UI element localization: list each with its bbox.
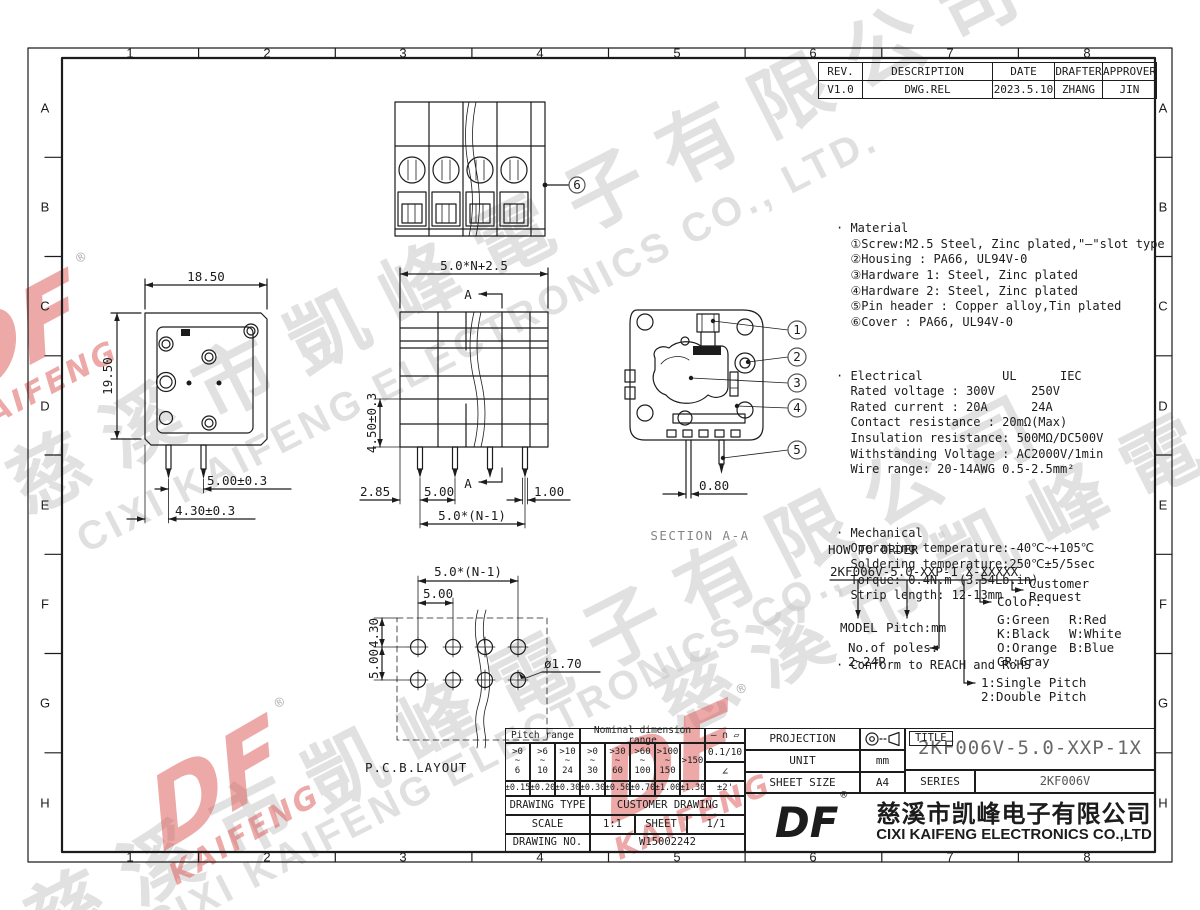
drafter-value: ZHANG — [1055, 81, 1103, 99]
color-option-white: W:White — [1069, 626, 1122, 641]
pitch-tol-2: ±0.20 — [530, 781, 555, 796]
dim-body-width-formula: 5.0*N+2.5 — [440, 258, 508, 273]
title-cell: TITLE 2KF006V-5.0-XXP-1X — [905, 728, 1155, 770]
company-strip: DF® 慈溪市凯峰电子有限公司 CIXI KAIFENG ELECTRONICS… — [745, 793, 1155, 852]
grid-col-label: 2 — [263, 46, 270, 61]
grid-row-label: A — [41, 101, 50, 116]
nominal-range-4: >100 ~ 150 — [655, 743, 680, 781]
color-option-orange: O:Orange — [997, 640, 1057, 655]
rev-header: REV. — [819, 63, 863, 81]
electrical-notes: · Electrical UL IEC Rated voltage : 300V… — [836, 369, 1158, 478]
angle-symbol: ∠ — [705, 762, 745, 781]
dim-body-height: 19.50 — [100, 357, 115, 395]
dim-hole-diameter: ø1.70 — [544, 656, 582, 671]
dim-pin-thickness: 0.80 — [699, 478, 729, 493]
drawing-no-label: DRAWING NO. — [505, 834, 590, 852]
drawing-sheet: 慈溪市凱峰電子有限公司 CIXI KAIFENG ELECTRONICS CO.… — [0, 0, 1200, 910]
grid-col-label: 2 — [263, 850, 270, 865]
dim-edge-to-pin: 2.85 — [360, 484, 390, 499]
drafter-header: DRAFTER — [1055, 63, 1103, 81]
how-to-order-title: HOW TO ORDER — [828, 542, 919, 557]
single-pitch-option: 1:Single Pitch — [981, 675, 1086, 690]
callout-1-label: 1 — [793, 322, 801, 337]
grid-row-label: G — [40, 696, 50, 711]
grid-row-label: D — [1158, 399, 1167, 414]
callout-2-label: 2 — [793, 349, 801, 364]
grid-row-label: C — [40, 299, 49, 314]
scale-value: 1:1 — [590, 815, 635, 834]
grid-col-label: 8 — [1083, 46, 1090, 61]
description-header: DESCRIPTION — [863, 63, 993, 81]
callout-6-label: 6 — [573, 177, 581, 192]
approver-header: APPROVER — [1103, 63, 1157, 81]
grid-col-label: 1 — [126, 850, 133, 865]
pitch-range-2: >6 ~ 10 — [530, 743, 555, 781]
section-marker-a-top: A — [464, 287, 472, 302]
grid-col-label: 3 — [399, 850, 406, 865]
date-header: DATE — [993, 63, 1055, 81]
material-notes: · Material ①Screw:M2.5 Steel, Zinc plate… — [836, 221, 1158, 330]
dim-pin-pitch: 5.00 — [424, 484, 454, 499]
sheet-label: SHEET — [635, 815, 687, 834]
grid-row-label: F — [1159, 597, 1167, 612]
color-option-green: G:Green — [997, 612, 1050, 627]
pitch-label: Pitch:mm — [886, 620, 946, 635]
nominal-range-2: >30 ~ 60 — [605, 743, 630, 781]
grid-row-label: E — [41, 498, 50, 513]
nominal-tol-5: ±1.30 — [680, 781, 705, 796]
unit-value: mm — [860, 750, 905, 772]
nominal-range-header: Nominal dimension range — [580, 728, 705, 743]
nominal-range-1: >0 ~ 30 — [580, 743, 605, 781]
dim-pin-span-formula: 5.0*(N-1) — [438, 508, 506, 523]
projection-symbol-cell — [860, 728, 905, 750]
pitch-range-1: >0 ~ 6 — [505, 743, 530, 781]
color-option-black: K:Black — [997, 626, 1050, 641]
grid-col-label: 3 — [399, 46, 406, 61]
nominal-range-3: >60 ~ 100 — [630, 743, 655, 781]
section-view-drawing: 1 2 3 4 5 0.80 SECTION A-A — [615, 288, 835, 558]
front-view-drawing: 6 — [385, 88, 600, 248]
callout-3-label: 3 — [793, 375, 801, 390]
grid-row-label: D — [40, 399, 49, 414]
pitch-range-3: >10 ~ 24 — [555, 743, 580, 781]
nominal-tol-2: ±0.50 — [605, 781, 630, 796]
grid-col-label: 4 — [536, 46, 543, 61]
color-option-gray: GR:Gray — [997, 654, 1050, 669]
nominal-range-5: >150 — [680, 743, 705, 781]
color-option-blue: B:Blue — [1069, 640, 1114, 655]
dim-body-width: 18.50 — [187, 269, 225, 284]
series-label: SERIES — [905, 770, 975, 793]
section-marker-a-bottom: A — [464, 476, 472, 491]
geometry-symbols: — ∩ ▱ — [705, 728, 745, 743]
poles-range: 2~24P — [848, 654, 886, 669]
projection-label: PROJECTION — [745, 728, 860, 750]
poles-label: No.of poles: — [848, 640, 938, 655]
grid-row-label: H — [1158, 796, 1167, 811]
company-names: 慈溪市凯峰电子有限公司 CIXI KAIFENG ELECTRONICS CO.… — [874, 801, 1154, 844]
dim-hole-span-formula: 5.0*(N-1) — [434, 564, 502, 579]
company-name-english: CIXI KAIFENG ELECTRONICS CO.,LTD — [874, 827, 1154, 844]
grid-row-label: E — [1159, 498, 1168, 513]
dim-hole-pitch: 5.00 — [423, 586, 453, 601]
revision-row: V1.0 DWG.REL 2023.5.10 ZHANG JIN — [819, 81, 1157, 99]
first-angle-projection-icon — [861, 729, 904, 749]
sheet-value: 1/1 — [687, 815, 745, 834]
customer-request-label-2: Request — [1029, 589, 1082, 604]
title-block: Pitch range Nominal dimension range — ∩ … — [505, 728, 1155, 852]
df-logo-icon: DF — [775, 798, 839, 847]
revision-header-row: REV. DESCRIPTION DATE DRAFTER APPROVER — [819, 63, 1157, 81]
side-view-drawing: 18.50 19.50 5.00±0.3 4.30±0.3 — [95, 265, 330, 560]
how-to-order-diagram: HOW TO ORDER 2KF006V-5.0-XXP-1 X-XXXXX M… — [826, 540, 1160, 708]
grid-row-label: H — [40, 796, 49, 811]
dim-row-pitch: 5.00 — [366, 649, 381, 679]
date-value: 2023.5.10 — [993, 81, 1055, 99]
grid-col-label: 5 — [673, 46, 680, 61]
approver-value: JIN — [1103, 81, 1157, 99]
company-name-chinese: 慈溪市凯峰电子有限公司 — [874, 801, 1154, 827]
grid-row-label: B — [1159, 200, 1168, 215]
geometry-tolerance: 0.1/10 — [705, 743, 745, 762]
model-label: MODEL — [840, 620, 878, 635]
company-logo-box: DF® — [746, 802, 874, 844]
scale-label: SCALE — [505, 815, 590, 834]
registered-icon: ® — [840, 788, 847, 801]
grid-row-label: A — [1159, 101, 1168, 116]
nominal-tol-1: ±0.30 — [580, 781, 605, 796]
series-value: 2KF006V — [975, 770, 1155, 793]
grid-col-label: 6 — [809, 46, 816, 61]
nominal-tol-3: ±0.70 — [630, 781, 655, 796]
grid-row-label: B — [41, 200, 50, 215]
dim-height: 4.50±0.3 — [364, 393, 379, 453]
drawing-type-label: DRAWING TYPE — [505, 796, 590, 815]
grid-col-label: 1 — [126, 46, 133, 61]
drawing-type-value: CUSTOMER DRAWING — [590, 796, 745, 815]
dim-pin-width: 1.00 — [534, 484, 564, 499]
pitch-range-header: Pitch range — [505, 728, 580, 743]
dim-row-to-edge: 4.30 — [366, 618, 381, 648]
unit-label: UNIT — [745, 750, 860, 772]
angle-tolerance: ±2' — [705, 781, 745, 796]
dim-pin-to-edge: 4.30±0.3 — [175, 503, 235, 518]
grid-row-label: F — [41, 597, 49, 612]
callout-5-label: 5 — [793, 442, 801, 457]
section-view-label: SECTION A-A — [650, 528, 749, 543]
pitch-tol-1: ±0.15 — [505, 781, 530, 796]
title-tag-label: TITLE — [909, 731, 953, 746]
rev-value: V1.0 — [819, 81, 863, 99]
grid-col-label: 7 — [946, 46, 953, 61]
pcb-layout-label: P.C.B.LAYOUT — [365, 760, 467, 775]
description-value: DWG.REL — [863, 81, 993, 99]
order-code: 2KF006V-5.0-XXP-1 X-XXXXX — [830, 564, 1019, 579]
pitch-tol-3: ±0.30 — [555, 781, 580, 796]
dim-pin-pitch: 5.00±0.3 — [207, 473, 267, 488]
drawing-no-value: W15002242 — [590, 834, 745, 852]
nominal-tol-4: ±1.00 — [655, 781, 680, 796]
revision-table: REV. DESCRIPTION DATE DRAFTER APPROVER V… — [818, 62, 1157, 99]
callout-4-label: 4 — [793, 400, 801, 415]
rear-view-drawing: 5.0*N+2.5 A 4.50±0.3 A 2.85 5.00 1.00 5.… — [352, 252, 620, 537]
color-option-red: R:Red — [1069, 612, 1107, 627]
grid-row-label: C — [1158, 299, 1167, 314]
sheet-size-value: A4 — [860, 772, 905, 793]
double-pitch-option: 2:Double Pitch — [981, 689, 1086, 704]
